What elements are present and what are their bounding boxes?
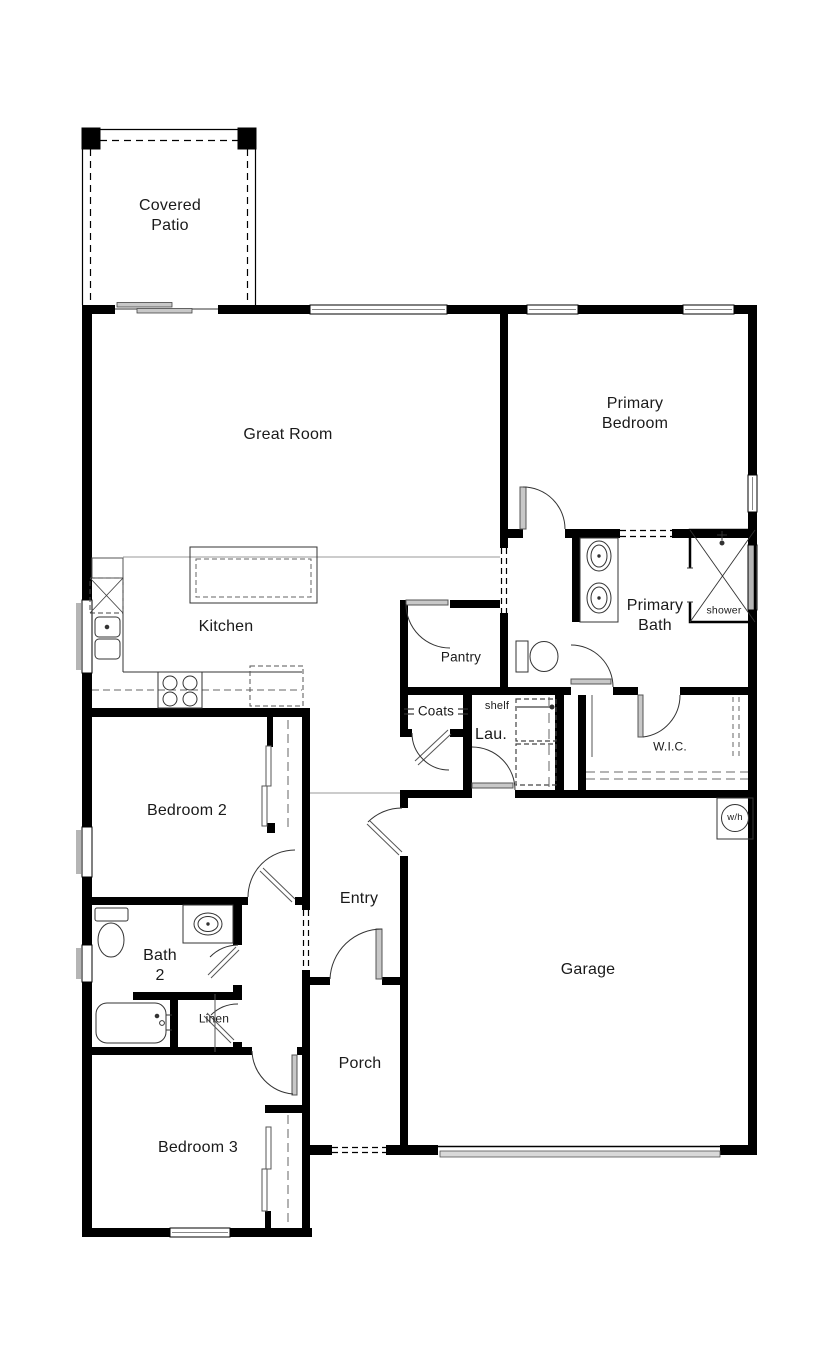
room-label-covered-patio: Covered Patio [139, 196, 201, 236]
room-label-linen: Linen [199, 1012, 229, 1027]
room-label-bath-2: Bath 2 [143, 946, 177, 986]
interior-walls [82, 313, 757, 1237]
room-label-primary-bedroom: Primary Bedroom [602, 394, 668, 434]
double-vanity-icon [580, 538, 618, 622]
dryer-icon [516, 744, 556, 785]
exterior-walls [82, 305, 757, 1237]
primary-toilet-icon [516, 641, 558, 672]
bath2-toilet-icon [95, 908, 128, 957]
room-label-coats: Coats [418, 704, 454, 721]
room-label-bedroom-2: Bedroom 2 [147, 801, 227, 821]
windows [76, 303, 757, 1238]
room-label-primary-bath: Primary Bath [627, 596, 684, 636]
room-label-entry: Entry [340, 889, 378, 909]
refrigerator-icon [90, 578, 123, 613]
floor-plan: Covered Patio Great Room Primary Bedroom… [0, 0, 840, 1371]
laundry-fixtures [515, 697, 556, 787]
closet-fittings [215, 695, 748, 1223]
room-label-kitchen: Kitchen [199, 617, 254, 637]
room-label-pantry: Pantry [441, 650, 481, 667]
washer-icon [516, 699, 556, 741]
fixture-label-shower: shower [706, 604, 741, 617]
fixture-label-water-heater: w/h [727, 812, 742, 824]
bathtub-icon [96, 1003, 172, 1043]
room-label-wic: W.I.C. [653, 740, 687, 755]
room-label-porch: Porch [339, 1054, 382, 1074]
kitchen-island [190, 547, 317, 603]
bath2-sink-icon [183, 905, 233, 943]
kitchen-sink-icon [95, 617, 120, 659]
room-label-great-room: Great Room [243, 425, 332, 445]
room-label-bedroom-3: Bedroom 3 [158, 1138, 238, 1158]
fixture-label-shelf: shelf [485, 700, 509, 714]
garage-door [438, 1147, 720, 1158]
room-label-garage: Garage [561, 960, 616, 980]
floor-plan-drawing [0, 0, 840, 1371]
room-label-laundry: Lau. [475, 725, 507, 745]
